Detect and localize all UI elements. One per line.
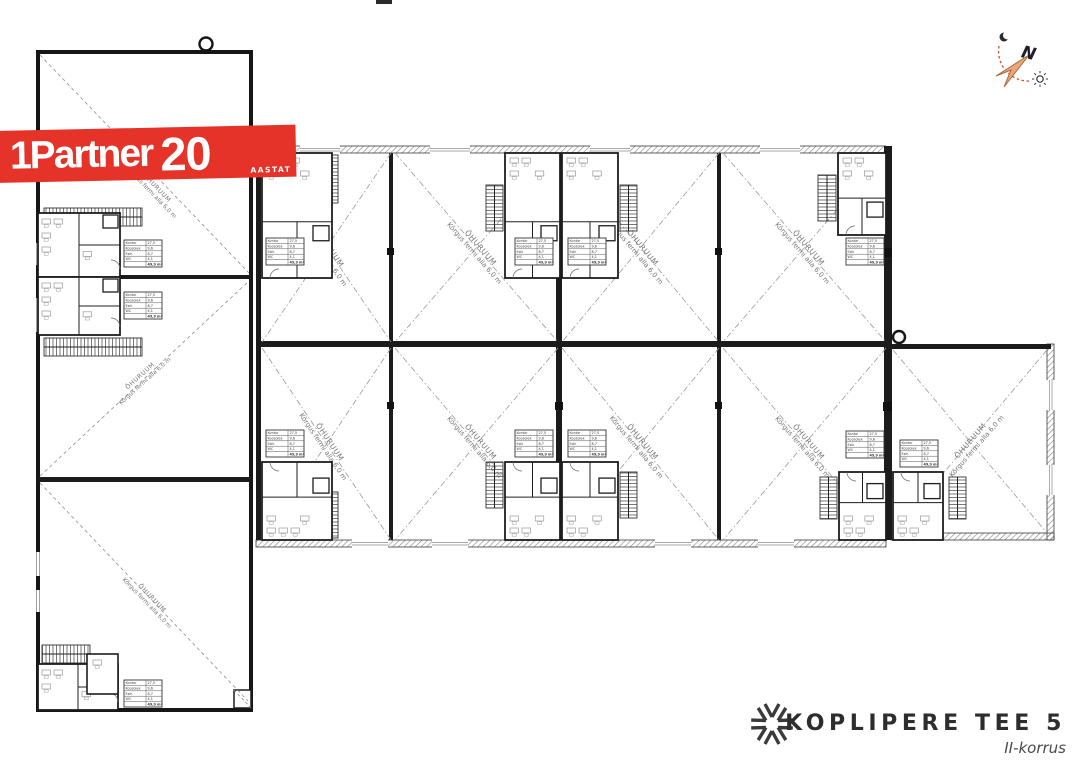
svg-text:27,5: 27,5 — [870, 432, 878, 436]
svg-text:Koosolek: Koosolek — [570, 436, 585, 440]
svg-text:WC: WC — [126, 257, 132, 261]
svg-text:Esik: Esik — [268, 250, 275, 254]
svg-text:9,6: 9,6 — [592, 436, 597, 440]
unit-area-table: Kontor27,5Koosolek9,6Esik8,7WC4,149,9 m² — [900, 440, 939, 467]
svg-text:Koosolek: Koosolek — [902, 446, 917, 450]
svg-text:9,6: 9,6 — [148, 246, 153, 250]
svg-text:9,6: 9,6 — [870, 437, 875, 441]
svg-text:Kõrgus fermi alla 6,0 m: Kõrgus fermi alla 6,0 m — [773, 221, 831, 286]
svg-text:Koosolek: Koosolek — [268, 436, 283, 440]
svg-text:27,5: 27,5 — [290, 239, 298, 243]
svg-text:WC: WC — [902, 457, 908, 461]
north-label: N — [1019, 42, 1038, 65]
unit-area-table: Kontor27,5Koosolek9,6Esik8,7WC4,149,9 m² — [846, 238, 885, 265]
room-cluster — [839, 472, 886, 540]
svg-text:8,7: 8,7 — [148, 692, 153, 696]
svg-text:8,7: 8,7 — [539, 250, 544, 254]
svg-text:WC: WC — [570, 447, 576, 451]
svg-text:WC: WC — [268, 447, 274, 451]
room-cluster — [562, 462, 618, 540]
svg-text:Kontor: Kontor — [570, 239, 582, 243]
svg-text:Esik: Esik — [126, 692, 133, 696]
svg-text:27,5: 27,5 — [539, 239, 547, 243]
svg-text:49,9 m²: 49,9 m² — [539, 261, 554, 265]
unit-area-table: Kontor27,5Koosolek9,6Esik8,7WC4,149,9 m² — [515, 238, 554, 265]
unit-area-table: Kontor27,5Koosolek9,6Esik8,7WC4,149,9 m² — [266, 238, 305, 265]
svg-text:Kontor: Kontor — [126, 293, 138, 297]
roof-drain-symbol — [893, 331, 905, 343]
svg-text:Esik: Esik — [902, 452, 909, 456]
svg-text:27,5: 27,5 — [148, 681, 156, 685]
svg-text:9,6: 9,6 — [870, 244, 875, 248]
svg-text:Koosolek: Koosolek — [848, 244, 863, 248]
svg-text:27,5: 27,5 — [592, 239, 600, 243]
room-cluster — [38, 213, 120, 277]
walls — [34, 0, 1055, 710]
svg-text:Kontor: Kontor — [570, 431, 582, 435]
svg-text:8,7: 8,7 — [290, 250, 295, 254]
svg-text:4,1: 4,1 — [290, 255, 295, 259]
svg-text:9,6: 9,6 — [148, 298, 153, 302]
unit-area-table: Kontor27,5Koosolek9,6Esik8,7WC4,149,9 m² — [266, 430, 305, 457]
roof-drain-symbol — [200, 38, 213, 51]
svg-text:4,1: 4,1 — [870, 255, 875, 259]
stairs — [486, 462, 503, 508]
svg-text:27,5: 27,5 — [924, 441, 932, 445]
svg-text:Esik: Esik — [848, 250, 855, 254]
stairs — [620, 472, 637, 518]
svg-text:Koosolek: Koosolek — [517, 244, 532, 248]
svg-text:49,9 m²: 49,9 m² — [870, 454, 885, 458]
svg-text:Koosolek: Koosolek — [517, 436, 532, 440]
unit-area-table: Kontor27,5Koosolek9,6Esik8,7WC4,149,9 m² — [568, 430, 607, 457]
room-cluster — [87, 654, 118, 694]
svg-text:27,5: 27,5 — [592, 431, 600, 435]
svg-text:Esik: Esik — [126, 304, 133, 308]
svg-text:Kõrgus fermi alla 6,0 m: Kõrgus fermi alla 6,0 m — [773, 415, 831, 480]
svg-text:49,9 m²: 49,9 m² — [148, 315, 163, 319]
compass: N — [996, 31, 1048, 87]
svg-text:49,9 m²: 49,9 m² — [290, 453, 305, 457]
room-cluster — [505, 462, 560, 540]
svg-text:8,7: 8,7 — [870, 250, 875, 254]
svg-text:4,1: 4,1 — [592, 255, 597, 259]
partner-logo-text: 1Partner — [10, 132, 153, 179]
moon-icon — [1000, 31, 1012, 42]
svg-text:27,5: 27,5 — [870, 239, 878, 243]
svg-text:Kontor: Kontor — [126, 681, 138, 685]
svg-text:WC: WC — [517, 255, 523, 259]
svg-text:49,9 m²: 49,9 m² — [539, 453, 554, 457]
svg-text:4,1: 4,1 — [924, 457, 929, 461]
svg-text:Esik: Esik — [268, 442, 275, 446]
stairs — [818, 175, 836, 221]
svg-text:Kontor: Kontor — [902, 441, 914, 445]
svg-text:4,1: 4,1 — [592, 447, 597, 451]
svg-text:Kontor: Kontor — [517, 239, 529, 243]
anniversary-label: AASTAT — [250, 165, 291, 175]
svg-text:4,1: 4,1 — [539, 447, 544, 451]
partner-banner: 1Partner 20 AASTAT — [0, 125, 296, 183]
svg-text:Esik: Esik — [848, 443, 855, 447]
svg-text:WC: WC — [126, 309, 132, 313]
anniversary-number: 20 — [160, 125, 211, 181]
stairs — [44, 338, 142, 356]
svg-text:49,9 m²: 49,9 m² — [592, 261, 607, 265]
svg-text:27,5: 27,5 — [539, 431, 547, 435]
svg-text:49,9 m²: 49,9 m² — [924, 463, 939, 467]
unit-area-table: Kontor27,5Koosolek9,6Esik8,7WC4,149,9 m² — [124, 680, 163, 707]
svg-text:Kontor: Kontor — [268, 239, 280, 243]
sun-icon — [1032, 71, 1048, 87]
svg-text:WC: WC — [126, 697, 132, 701]
svg-text:9,6: 9,6 — [592, 244, 597, 248]
svg-text:8,7: 8,7 — [290, 442, 295, 446]
svg-text:4,1: 4,1 — [870, 448, 875, 452]
svg-text:8,7: 8,7 — [148, 252, 153, 256]
svg-text:4,1: 4,1 — [148, 697, 153, 701]
svg-text:27,5: 27,5 — [148, 241, 156, 245]
svg-text:Koosolek: Koosolek — [126, 686, 141, 690]
svg-text:WC: WC — [570, 255, 576, 259]
svg-text:8,7: 8,7 — [539, 442, 544, 446]
svg-text:4,1: 4,1 — [290, 447, 295, 451]
svg-text:9,6: 9,6 — [539, 436, 544, 440]
svg-text:49,9 m²: 49,9 m² — [148, 263, 163, 267]
svg-text:4,1: 4,1 — [148, 257, 153, 261]
floorplan-sheet: ÕHURUUMKõrgus fermi alla 6,0 m ÕHURUUMKõ… — [0, 0, 1086, 768]
svg-text:Esik: Esik — [517, 442, 524, 446]
floor-label: II-korrus — [1004, 739, 1066, 757]
scan-mark — [376, 0, 392, 4]
stairs — [42, 645, 90, 663]
svg-text:Koosolek: Koosolek — [126, 298, 141, 302]
svg-text:Kõrgus fermi alla 6,0 m: Kõrgus fermi alla 6,0 m — [948, 414, 1006, 479]
svg-text:Koosolek: Koosolek — [126, 246, 141, 250]
corner-notch — [234, 690, 251, 708]
svg-text:8,7: 8,7 — [924, 452, 929, 456]
footer-title-block: KOPLIPERE TEE 5 II-korrus — [751, 704, 1066, 757]
stairs — [820, 477, 837, 519]
floor-plan-drawing: ÕHURUUMKõrgus fermi alla 6,0 m ÕHURUUMKõ… — [0, 0, 1086, 768]
svg-text:49,9 m²: 49,9 m² — [148, 703, 163, 707]
svg-text:Koosolek: Koosolek — [268, 244, 283, 248]
unit-area-table: Kontor27,5Koosolek9,6Esik8,7WC4,149,9 m² — [515, 430, 554, 457]
svg-text:27,5: 27,5 — [148, 293, 156, 297]
svg-text:Kontor: Kontor — [848, 432, 860, 436]
unit-area-table: Kontor27,5Koosolek9,6Esik8,7WC4,149,9 m² — [568, 238, 607, 265]
svg-text:8,7: 8,7 — [592, 442, 597, 446]
room-cluster — [893, 472, 943, 540]
svg-text:WC: WC — [848, 255, 854, 259]
unit-area-table: Kontor27,5Koosolek9,6Esik8,7WC4,149,9 m² — [124, 240, 163, 267]
svg-text:Esik: Esik — [570, 442, 577, 446]
svg-text:49,9 m²: 49,9 m² — [870, 261, 885, 265]
room-cluster — [38, 277, 120, 335]
svg-text:27,5: 27,5 — [290, 431, 298, 435]
svg-text:Kontor: Kontor — [126, 241, 138, 245]
svg-text:8,7: 8,7 — [148, 304, 153, 308]
room-cluster — [838, 153, 886, 235]
svg-text:Kontor: Kontor — [517, 431, 529, 435]
svg-text:9,6: 9,6 — [924, 446, 929, 450]
svg-text:9,6: 9,6 — [539, 244, 544, 248]
stairs — [949, 477, 966, 519]
svg-text:Kontor: Kontor — [848, 239, 860, 243]
unit-area-table: Kontor27,5Koosolek9,6Esik8,7WC4,149,9 m² — [846, 431, 885, 458]
project-title: KOPLIPERE TEE 5 — [785, 711, 1066, 736]
svg-text:Esik: Esik — [126, 252, 133, 256]
svg-text:9,6: 9,6 — [290, 244, 295, 248]
svg-text:49,9 m²: 49,9 m² — [290, 261, 305, 265]
stairs — [486, 185, 503, 231]
svg-text:Esik: Esik — [570, 250, 577, 254]
svg-text:WC: WC — [268, 255, 274, 259]
svg-text:WC: WC — [848, 448, 854, 452]
svg-text:9,6: 9,6 — [148, 686, 153, 690]
svg-text:49,9 m²: 49,9 m² — [592, 453, 607, 457]
svg-text:Koosolek: Koosolek — [848, 437, 863, 441]
svg-text:9,6: 9,6 — [290, 436, 295, 440]
unit-area-table: Kontor27,5Koosolek9,6Esik8,7WC4,149,9 m² — [124, 292, 163, 319]
svg-text:Kontor: Kontor — [268, 431, 280, 435]
svg-text:8,7: 8,7 — [870, 443, 875, 447]
svg-text:4,1: 4,1 — [148, 309, 153, 313]
stairs — [620, 185, 637, 231]
svg-text:Koosolek: Koosolek — [570, 244, 585, 248]
room-cluster — [262, 462, 332, 540]
svg-text:8,7: 8,7 — [592, 250, 597, 254]
svg-text:Esik: Esik — [517, 250, 524, 254]
svg-text:WC: WC — [517, 447, 523, 451]
svg-text:4,1: 4,1 — [539, 255, 544, 259]
